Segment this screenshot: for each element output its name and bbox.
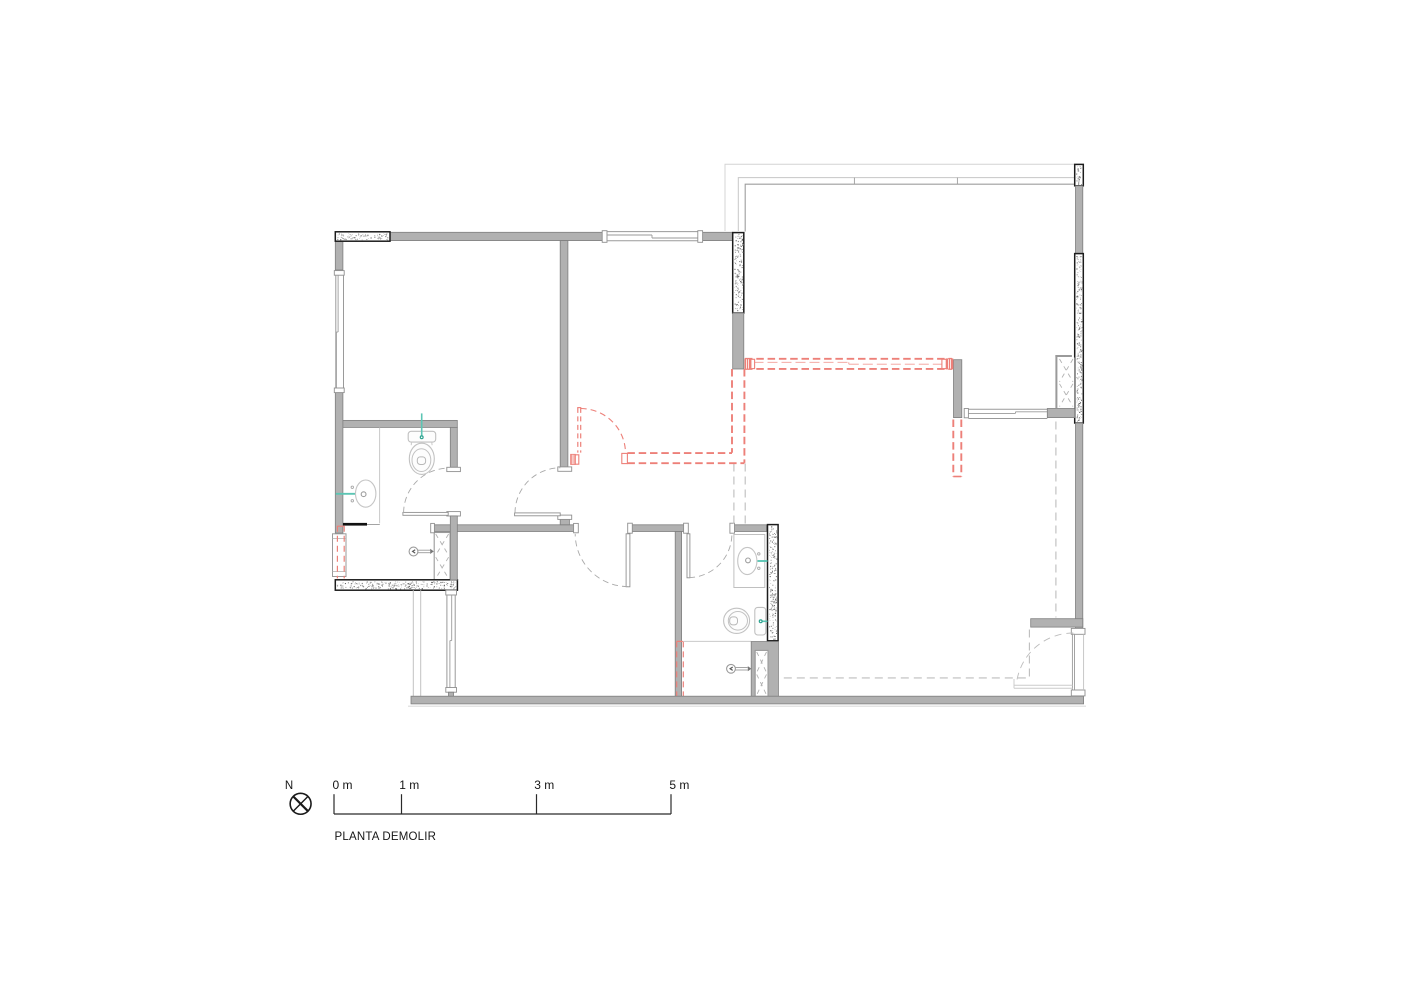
svg-text:3 m: 3 m xyxy=(534,778,554,792)
svg-text:5 m: 5 m xyxy=(669,778,689,792)
svg-text:PLANTA DEMOLIR: PLANTA DEMOLIR xyxy=(335,831,437,843)
svg-text:N: N xyxy=(285,780,293,792)
svg-text:1 m: 1 m xyxy=(399,778,419,792)
svg-text:0 m: 0 m xyxy=(333,778,353,792)
